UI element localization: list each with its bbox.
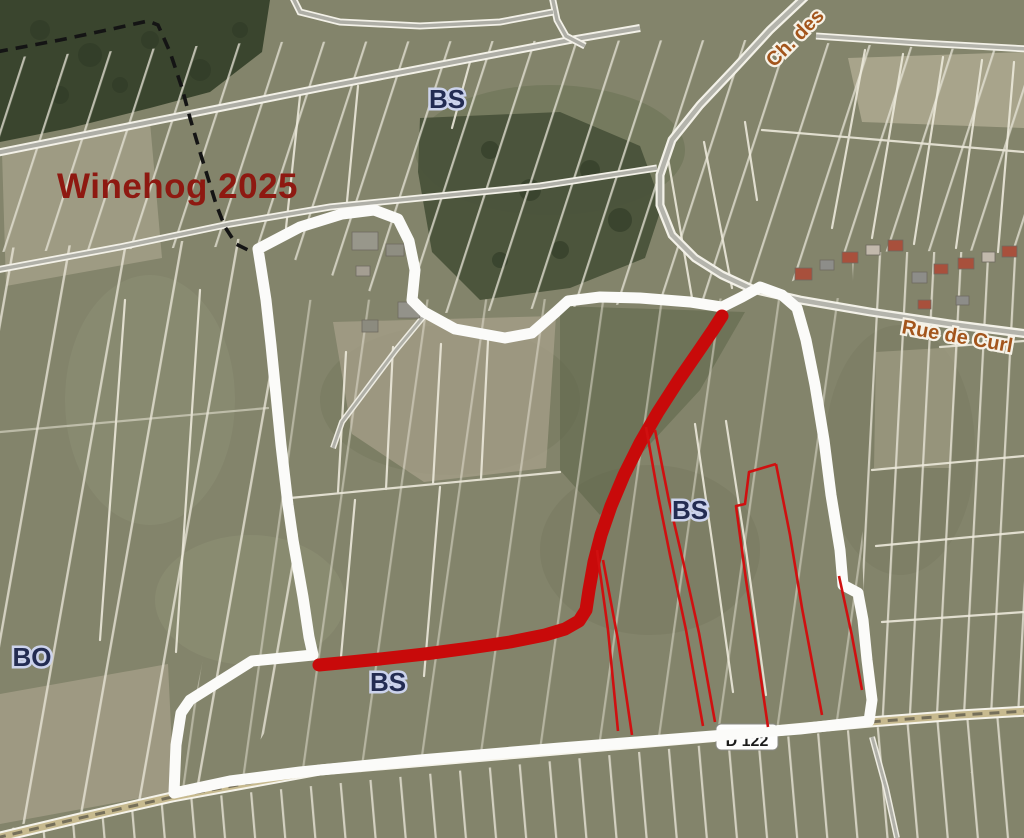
parcel-label-bo: BO <box>13 642 52 672</box>
watermark-text: Winehog 2025 <box>57 167 298 206</box>
parcel-label-bs-top: BS <box>429 84 465 114</box>
map-image: D 122 Winehog 2025 BS BS BS BO Ch. des R… <box>0 0 1024 838</box>
map-canvas: D 122 Winehog 2025 BS BS BS BO Ch. des R… <box>0 0 1024 838</box>
parcel-label-bs-center: BS <box>672 495 708 525</box>
parcel-label-bs-lower: BS <box>370 667 406 697</box>
